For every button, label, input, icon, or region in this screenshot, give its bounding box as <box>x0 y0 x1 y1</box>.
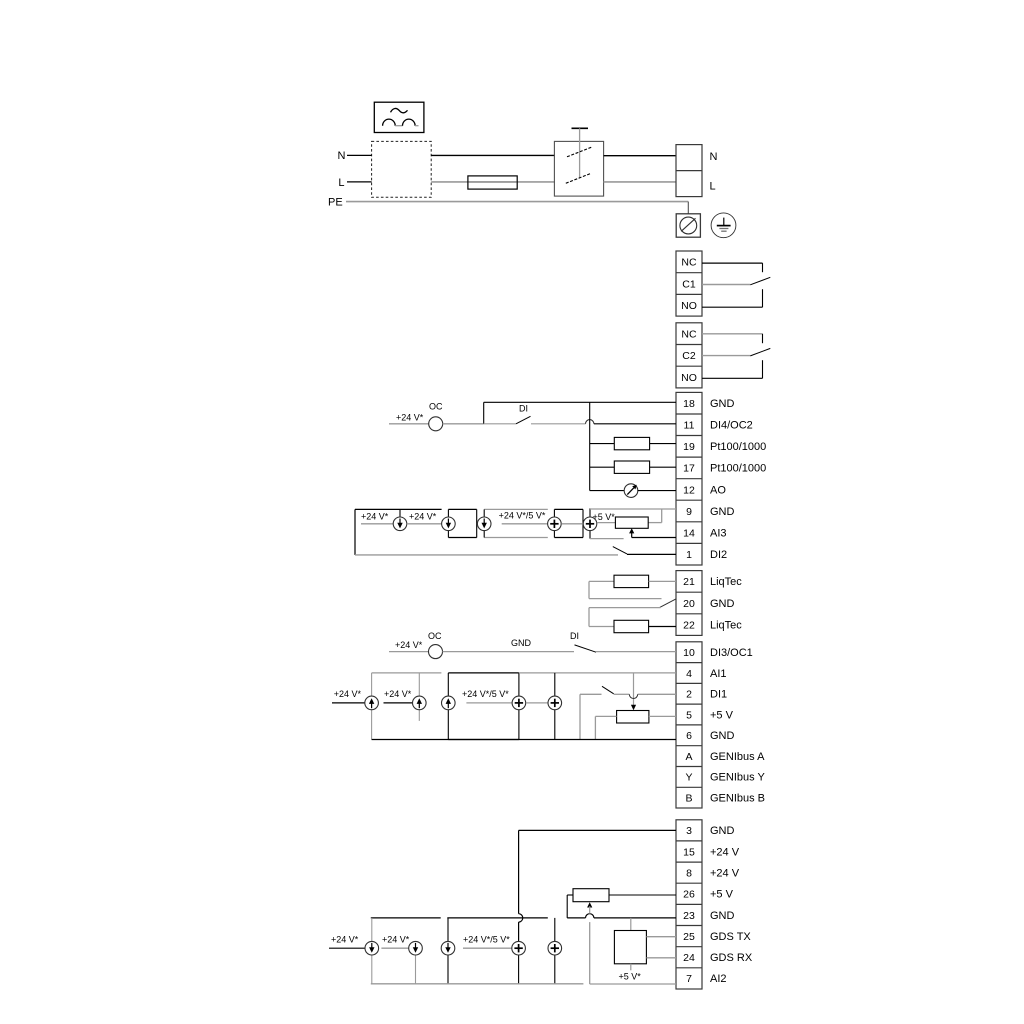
svg-text:GDS TX: GDS TX <box>710 931 751 943</box>
svg-text:+24 V*: +24 V* <box>395 640 423 650</box>
svg-text:PE: PE <box>328 197 343 209</box>
svg-text:+5 V*: +5 V* <box>593 512 616 522</box>
svg-text:+24 V: +24 V <box>710 846 740 858</box>
svg-text:+5 V: +5 V <box>710 889 734 901</box>
svg-text:GDS RX: GDS RX <box>710 952 753 964</box>
svg-text:AO: AO <box>710 484 726 496</box>
svg-text:7: 7 <box>686 973 692 985</box>
svg-text:+24 V*: +24 V* <box>396 412 424 422</box>
svg-text:GENIbus Y: GENIbus Y <box>710 772 765 784</box>
svg-text:C1: C1 <box>682 278 696 290</box>
svg-text:NO: NO <box>681 372 697 384</box>
svg-text:L: L <box>710 181 716 193</box>
svg-text:17: 17 <box>683 463 695 475</box>
svg-text:N: N <box>338 150 346 162</box>
svg-text:4: 4 <box>686 668 692 680</box>
svg-text:Pt100/1000: Pt100/1000 <box>710 463 766 475</box>
svg-text:A: A <box>685 751 692 763</box>
svg-text:26: 26 <box>683 889 695 901</box>
svg-text:OC: OC <box>429 401 443 411</box>
svg-text:+24 V*: +24 V* <box>361 511 389 521</box>
svg-text:+24 V: +24 V <box>710 868 740 880</box>
svg-text:GND: GND <box>511 638 532 648</box>
svg-text:NC: NC <box>681 257 697 269</box>
svg-text:DI4/OC2: DI4/OC2 <box>710 420 753 432</box>
svg-text:AI2: AI2 <box>710 973 727 985</box>
svg-text:8: 8 <box>686 868 692 880</box>
svg-text:5: 5 <box>686 709 692 721</box>
svg-text:10: 10 <box>683 647 695 659</box>
svg-text:2: 2 <box>686 689 692 701</box>
svg-text:+24 V*: +24 V* <box>384 689 412 699</box>
svg-text:15: 15 <box>683 846 695 858</box>
svg-text:3: 3 <box>686 825 692 837</box>
svg-text:DI2: DI2 <box>710 549 727 561</box>
svg-text:+24 V*: +24 V* <box>382 934 410 944</box>
svg-text:DI: DI <box>519 404 528 414</box>
svg-text:12: 12 <box>683 484 695 496</box>
svg-text:+24 V*: +24 V* <box>334 689 362 699</box>
svg-text:21: 21 <box>683 576 695 588</box>
svg-text:GENIbus A: GENIbus A <box>710 751 765 763</box>
svg-text:22: 22 <box>683 619 695 631</box>
svg-text:GND: GND <box>710 910 735 922</box>
svg-text:11: 11 <box>684 420 695 432</box>
svg-text:NC: NC <box>681 329 697 341</box>
svg-text:GND: GND <box>710 506 735 518</box>
svg-text:+24 V*/5 V*: +24 V*/5 V* <box>462 689 509 699</box>
svg-text:+24 V*/5 V*: +24 V*/5 V* <box>499 510 546 520</box>
svg-text:GND: GND <box>710 398 735 410</box>
svg-text:1: 1 <box>686 549 692 561</box>
svg-text:Pt100/1000: Pt100/1000 <box>710 441 766 453</box>
svg-text:9: 9 <box>686 506 692 518</box>
svg-text:DI1: DI1 <box>710 689 727 701</box>
svg-text:LiqTec: LiqTec <box>710 619 742 631</box>
svg-text:N: N <box>710 151 718 163</box>
svg-text:24: 24 <box>683 952 695 964</box>
svg-text:B: B <box>685 792 692 804</box>
svg-text:C2: C2 <box>682 350 696 362</box>
svg-text:20: 20 <box>683 598 695 610</box>
svg-text:Y: Y <box>685 772 692 784</box>
svg-text:LiqTec: LiqTec <box>710 576 742 588</box>
svg-text:OC: OC <box>428 631 442 641</box>
svg-text:GENIbus B: GENIbus B <box>710 792 765 804</box>
svg-text:AI3: AI3 <box>710 527 727 539</box>
svg-text:GND: GND <box>710 825 735 837</box>
svg-text:GND: GND <box>710 598 735 610</box>
svg-text:L: L <box>338 177 344 189</box>
svg-text:+24 V*/5 V*: +24 V*/5 V* <box>463 934 510 944</box>
svg-text:NO: NO <box>681 300 697 312</box>
svg-text:6: 6 <box>686 730 692 742</box>
svg-text:14: 14 <box>683 527 695 539</box>
svg-text:AI1: AI1 <box>710 668 727 680</box>
svg-text:+5 V*: +5 V* <box>619 972 642 982</box>
svg-text:23: 23 <box>683 910 695 922</box>
svg-text:+24 V*: +24 V* <box>409 511 437 521</box>
svg-text:+5 V: +5 V <box>710 709 734 721</box>
svg-text:GND: GND <box>710 730 735 742</box>
svg-text:18: 18 <box>683 398 695 410</box>
svg-text:25: 25 <box>683 931 695 943</box>
svg-text:+24 V*: +24 V* <box>331 934 359 944</box>
svg-text:DI: DI <box>570 631 579 641</box>
svg-text:DI3/OC1: DI3/OC1 <box>710 647 753 659</box>
svg-text:19: 19 <box>683 441 695 453</box>
